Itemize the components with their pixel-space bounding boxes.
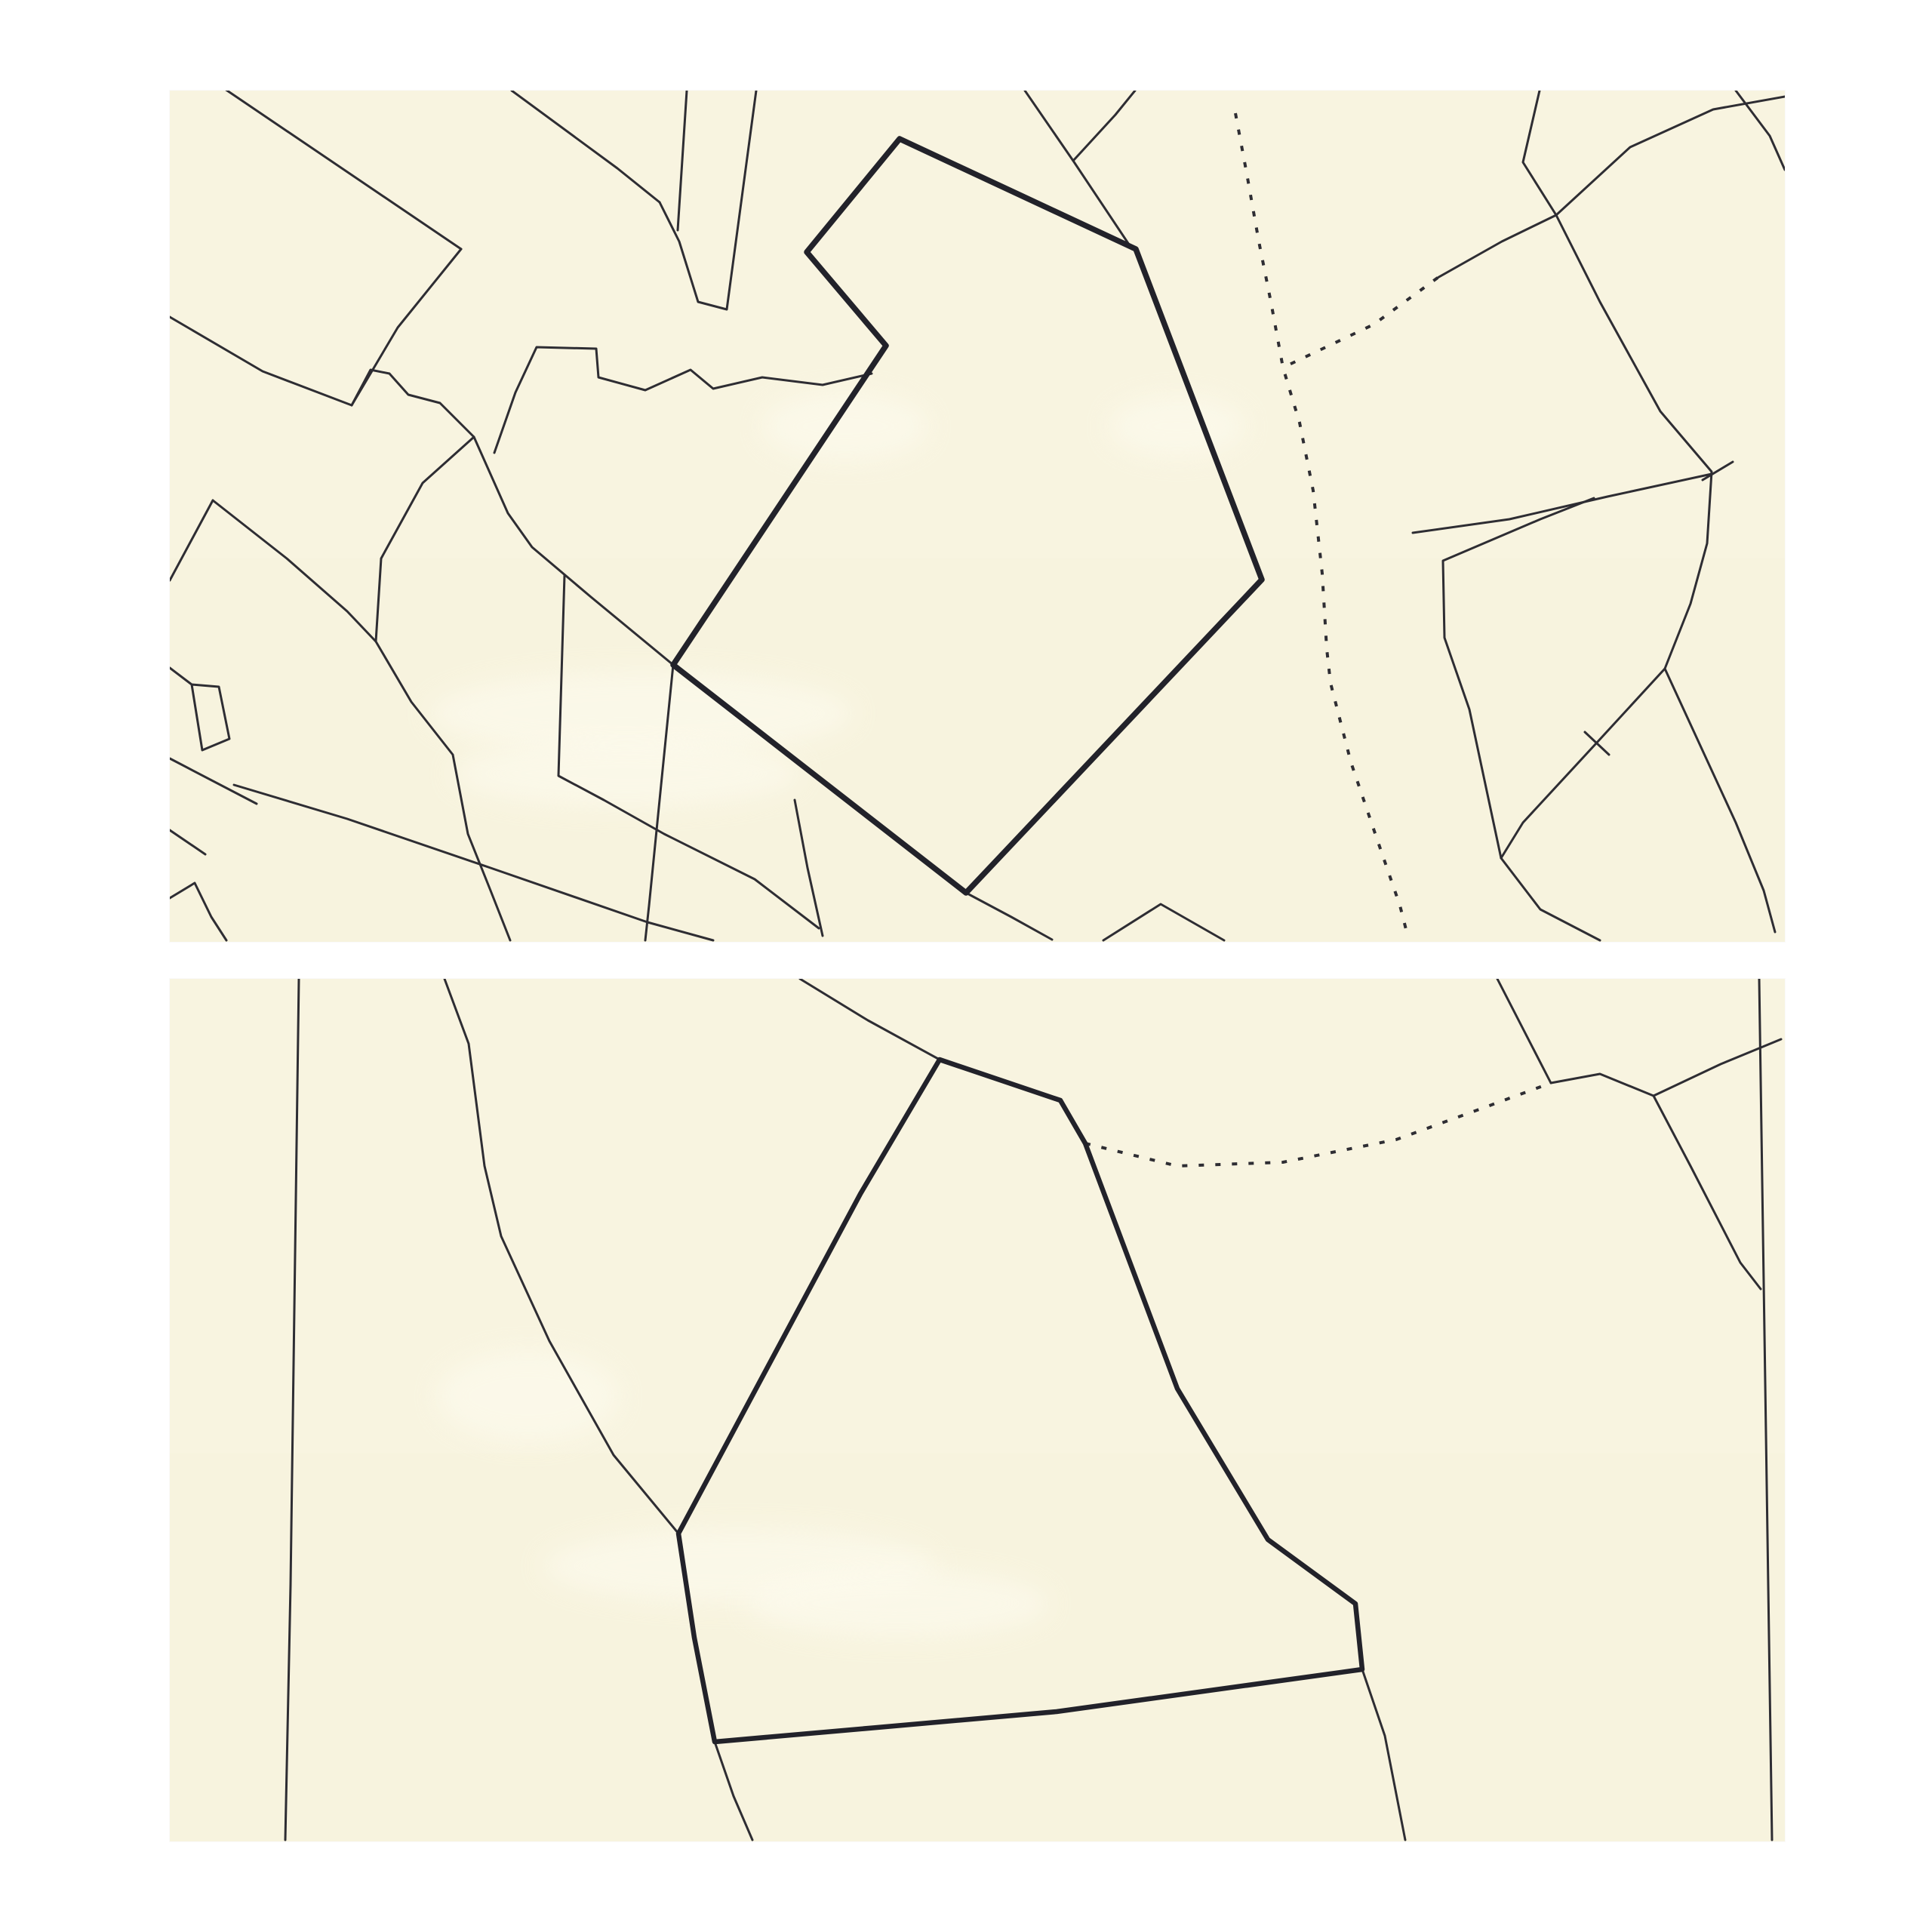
paper-shading [170,1454,1785,1841]
lower-map-panel [170,979,1785,1841]
ghost-bleed-mark [747,1570,1049,1638]
ghost-bleed-mark [453,740,800,808]
lower-map-figure [170,979,1785,1841]
ghost-bleed-mark [1109,396,1245,457]
upper-map-figure [170,91,1785,942]
ghost-bleed-mark [438,1351,619,1441]
upper-map-panel [170,91,1785,942]
scanned-plat-page: { "page": { "background": "#ffffff", "pa… [0,0,1932,1932]
